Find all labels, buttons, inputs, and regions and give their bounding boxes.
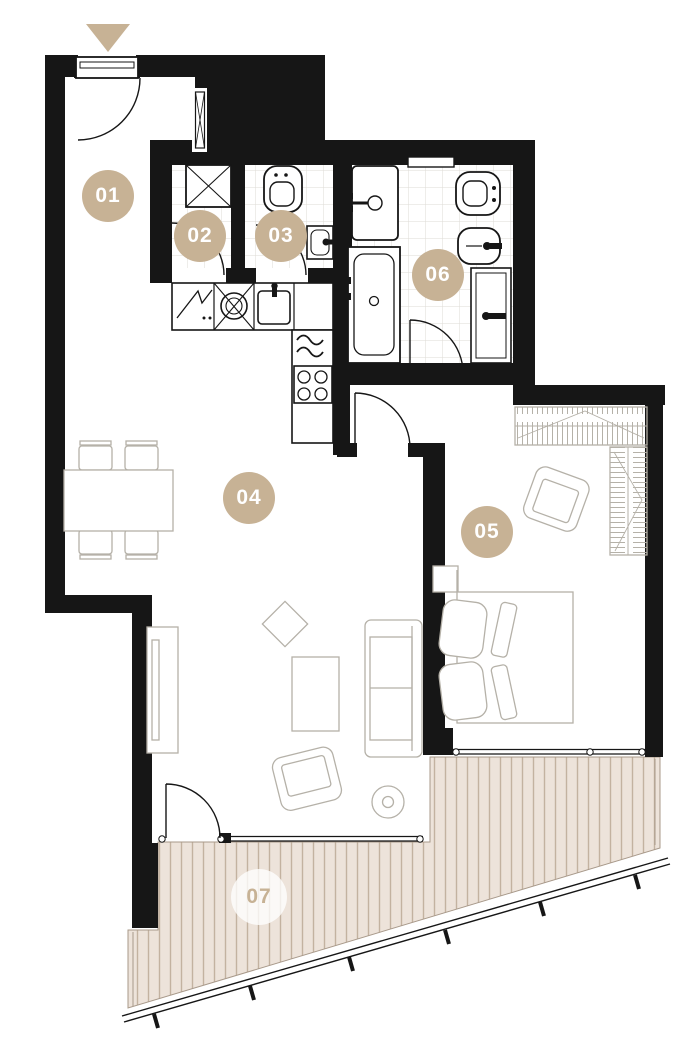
coffee-table [292,657,339,731]
nightstand [433,566,458,592]
room-label-05-bedroom: 05 [461,506,513,558]
floor-lamp [372,786,404,818]
room-label-03-wc: 03 [255,210,307,262]
dining-chair [125,441,158,470]
room-label-04-living-room: 04 [223,472,275,524]
dining-table [64,441,173,559]
room-label-06-bathroom: 06 [412,249,464,301]
kitchen-counter [172,283,333,443]
bathtub-icon [342,247,400,363]
bidet-icon [458,228,502,264]
wardrobe-side [610,447,647,555]
terrace-deck [128,757,660,1008]
armchair-living [270,745,343,812]
pillow [438,661,488,722]
dining-chair [79,441,112,470]
room-label-01-entry-hall: 01 [82,170,134,222]
sideboard [147,627,178,753]
shower-icon [186,165,231,207]
armchair-bedroom [521,464,592,534]
room-label-07-terrace: 07 [231,869,287,925]
washbasin-icon [307,226,334,259]
toilet-icon [264,166,302,212]
door-bedroom [355,393,410,448]
shelf [408,157,454,167]
floor-plan: 01 02 03 04 05 06 07 [0,0,698,1064]
bathroom-sink-icon [345,166,398,240]
toilet-bathroom-icon [456,172,500,215]
entrance-arrow-icon [86,24,130,52]
room-label-02-shower-room: 02 [174,210,226,262]
stove-icon [294,366,332,403]
dining-chair [125,530,158,559]
window-bedroom [453,749,645,755]
duct-shaft [192,88,207,152]
sofa [365,620,422,757]
floor-plan-drawing [0,0,698,1064]
bathroom-cabinet [471,268,511,363]
bed [438,570,573,723]
pillow [438,599,488,660]
wardrobe-top [515,407,647,445]
dining-chair [79,530,112,559]
door-terrace [166,784,220,838]
entrance-door [76,57,140,140]
side-table [262,601,307,646]
window-living-room [159,836,423,842]
